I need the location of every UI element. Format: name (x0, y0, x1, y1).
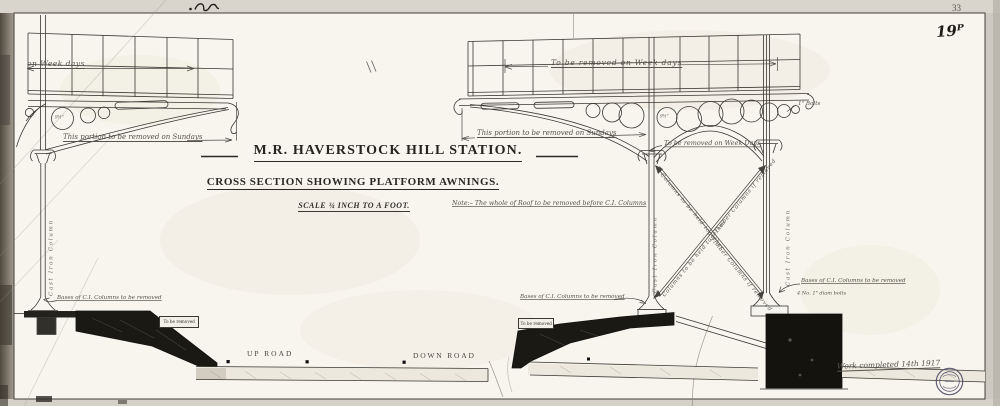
drawing-title: M.R. HAVERSTOCK HILL STATION. (254, 143, 523, 162)
subtitle-block: CROSS SECTION SHOWING PLATFORM AWNINGS. (205, 172, 501, 190)
mid-column-label: Cast Iron Column (651, 216, 658, 293)
left-weekdays-dim-label: on Week days (27, 59, 85, 68)
left-column-label: Cast Iron Column (47, 219, 54, 296)
right-base-bolts-note: 4 No. 1" diam bolts (797, 290, 846, 296)
left-sundays-note: This portion to be removed on Sundays (63, 133, 202, 141)
title-block: M.R. HAVERSTOCK HILL STATION. (240, 141, 536, 162)
left-wall-removal-tag: To be removed (159, 316, 199, 328)
roof-removal-note: Note:– The whole of Roof to be removed b… (452, 200, 646, 207)
bolts-label: 1" Bolts (798, 100, 820, 106)
plate-number: 19ᴾ (935, 21, 964, 41)
scale-note: SCALE ¾ INCH TO A FOOT. (298, 201, 409, 212)
left-circle-dim: 9½" (55, 115, 64, 120)
right-base-note: Bases of C.I. Columns to be removed (801, 277, 906, 283)
up-road-label: UP ROAD (247, 349, 293, 358)
mid-weekdays-note: To be removed on Week Days (664, 140, 760, 147)
drawing-sheet: 33 19ᴾ M.R. HAVERSTOCK HILL STATION. CRO… (0, 0, 1000, 406)
page-number: 33 (952, 3, 961, 13)
right-column-label: Cast Iron Column (784, 209, 791, 286)
right-weekdays-dim-label: To be removed on Week days (551, 58, 682, 67)
right-circle-dim: 9½" (660, 114, 669, 119)
center-wall-removal-tag: To be removed (518, 318, 554, 329)
left-base-note: Bases of C.I. Columns to be removed (57, 294, 162, 300)
mid-base-note: Bases of C.I. Columns to be removed (520, 293, 625, 299)
scale-block: SCALE ¾ INCH TO A FOOT. (288, 195, 420, 213)
left-wall-removal-tag-text: To be removed (163, 320, 194, 325)
down-road-label: DOWN ROAD (413, 351, 476, 360)
center-wall-removal-tag-text: To be removed (520, 321, 551, 326)
drawing-subtitle: CROSS SECTION SHOWING PLATFORM AWNINGS. (207, 176, 499, 190)
right-sundays-note: This portion to be removed on Sundays (477, 129, 616, 137)
